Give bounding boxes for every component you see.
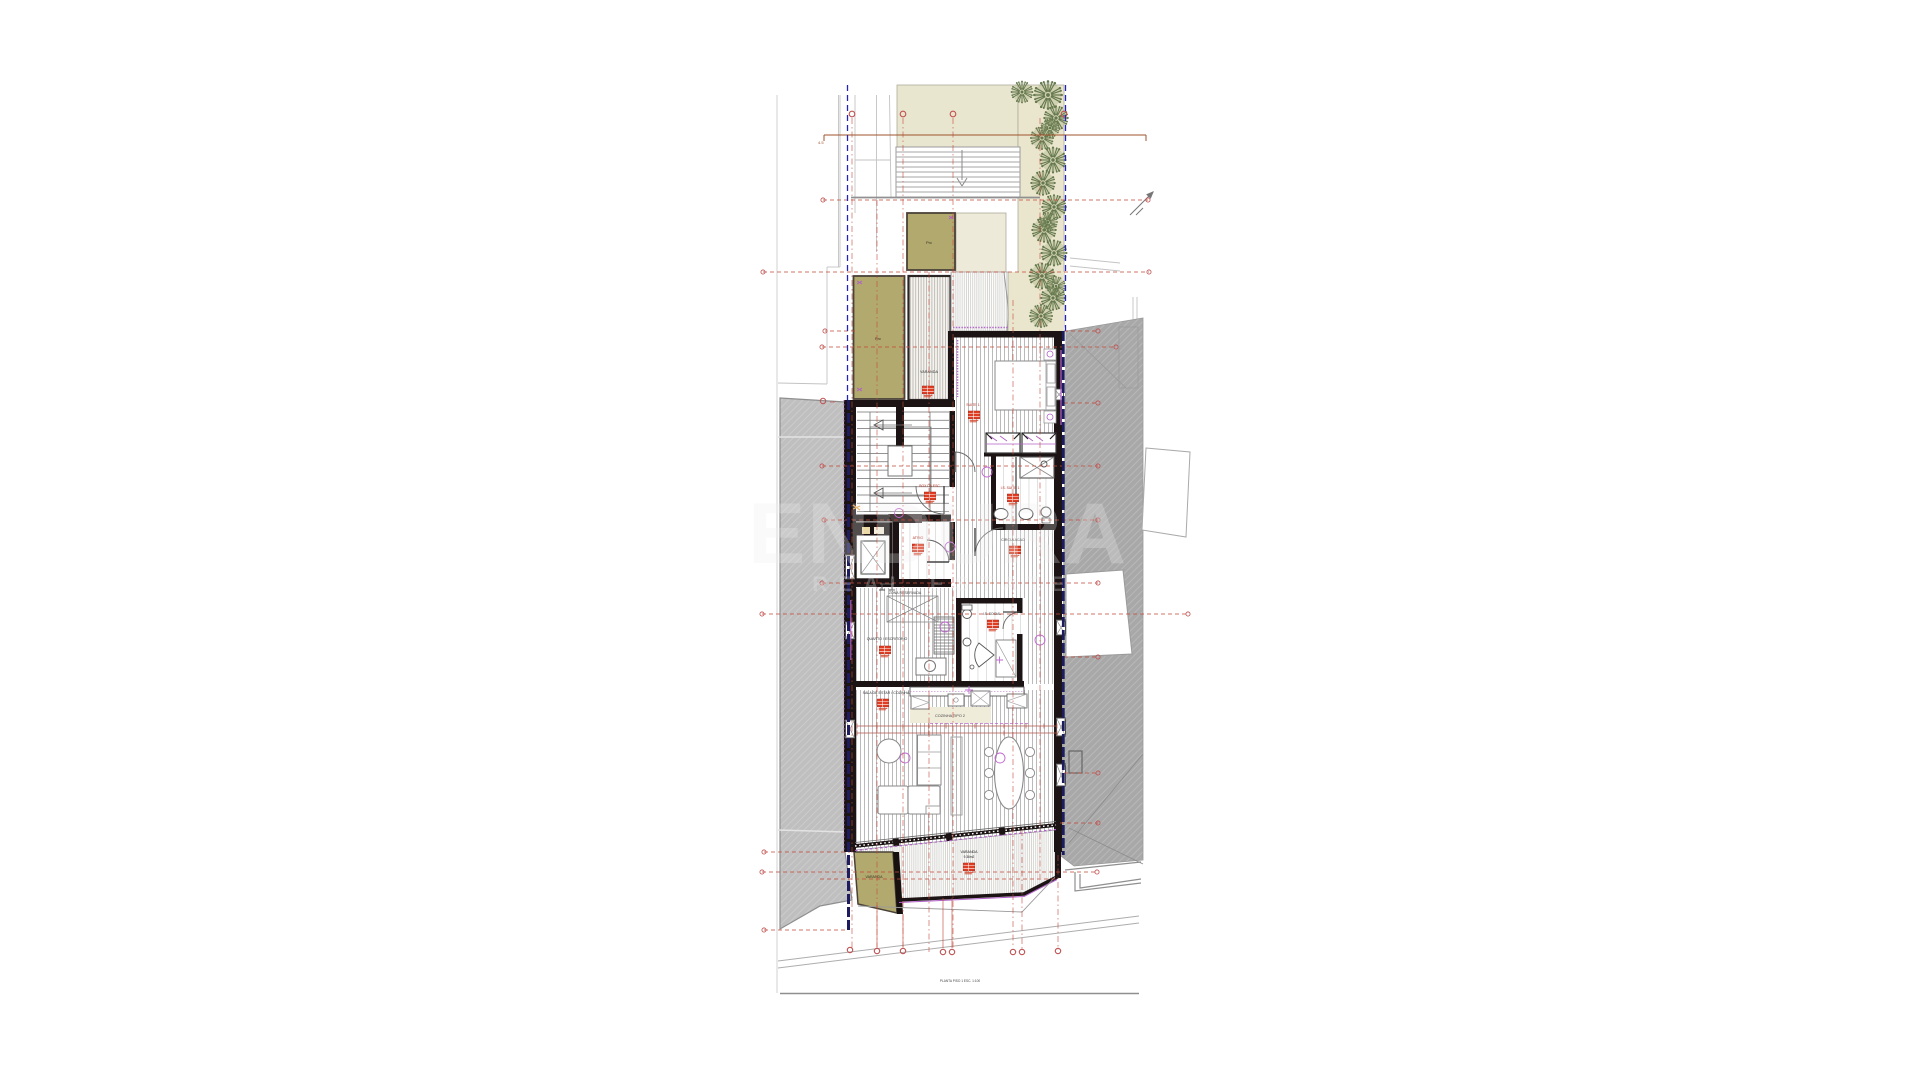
svg-text:REAL ESTATE: REAL ESTATE (812, 573, 1075, 596)
svg-text:9.36m2: 9.36m2 (964, 855, 975, 859)
svg-text:VARANDA: VARANDA (960, 850, 978, 854)
svg-text:9.87: 9.87 (830, 400, 836, 404)
svg-text:4.5: 4.5 (818, 140, 824, 145)
svg-text:Prc: Prc (875, 336, 881, 341)
svg-text:PLANTA PISO 1 ESC. 1:100: PLANTA PISO 1 ESC. 1:100 (940, 979, 981, 983)
svg-text:Prc: Prc (926, 240, 932, 245)
svg-text:ENDURA: ENDURA (748, 486, 1128, 582)
svg-text:QUARTO / ESCRITORIO: QUARTO / ESCRITORIO (867, 637, 908, 641)
svg-text:VARANDA: VARANDA (865, 875, 883, 879)
svg-text:SUITE 1: SUITE 1 (966, 403, 980, 407)
svg-text:COZINHA TIPO 2: COZINHA TIPO 2 (935, 714, 965, 718)
svg-text:I.S. SOCIAL: I.S. SOCIAL (983, 612, 1002, 616)
